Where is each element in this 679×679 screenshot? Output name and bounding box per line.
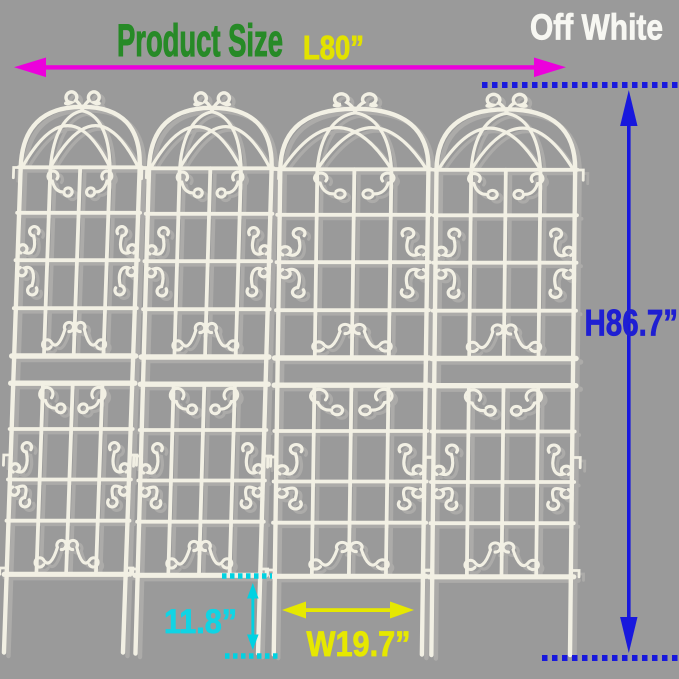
svg-text:11.8”: 11.8”: [164, 603, 237, 641]
svg-text:H86.7”: H86.7”: [585, 302, 679, 344]
svg-text:Off White: Off White: [530, 7, 663, 48]
svg-text:L80”: L80”: [303, 29, 364, 66]
svg-text:Product Size: Product Size: [117, 15, 283, 66]
svg-text:W19.7”: W19.7”: [307, 625, 411, 664]
